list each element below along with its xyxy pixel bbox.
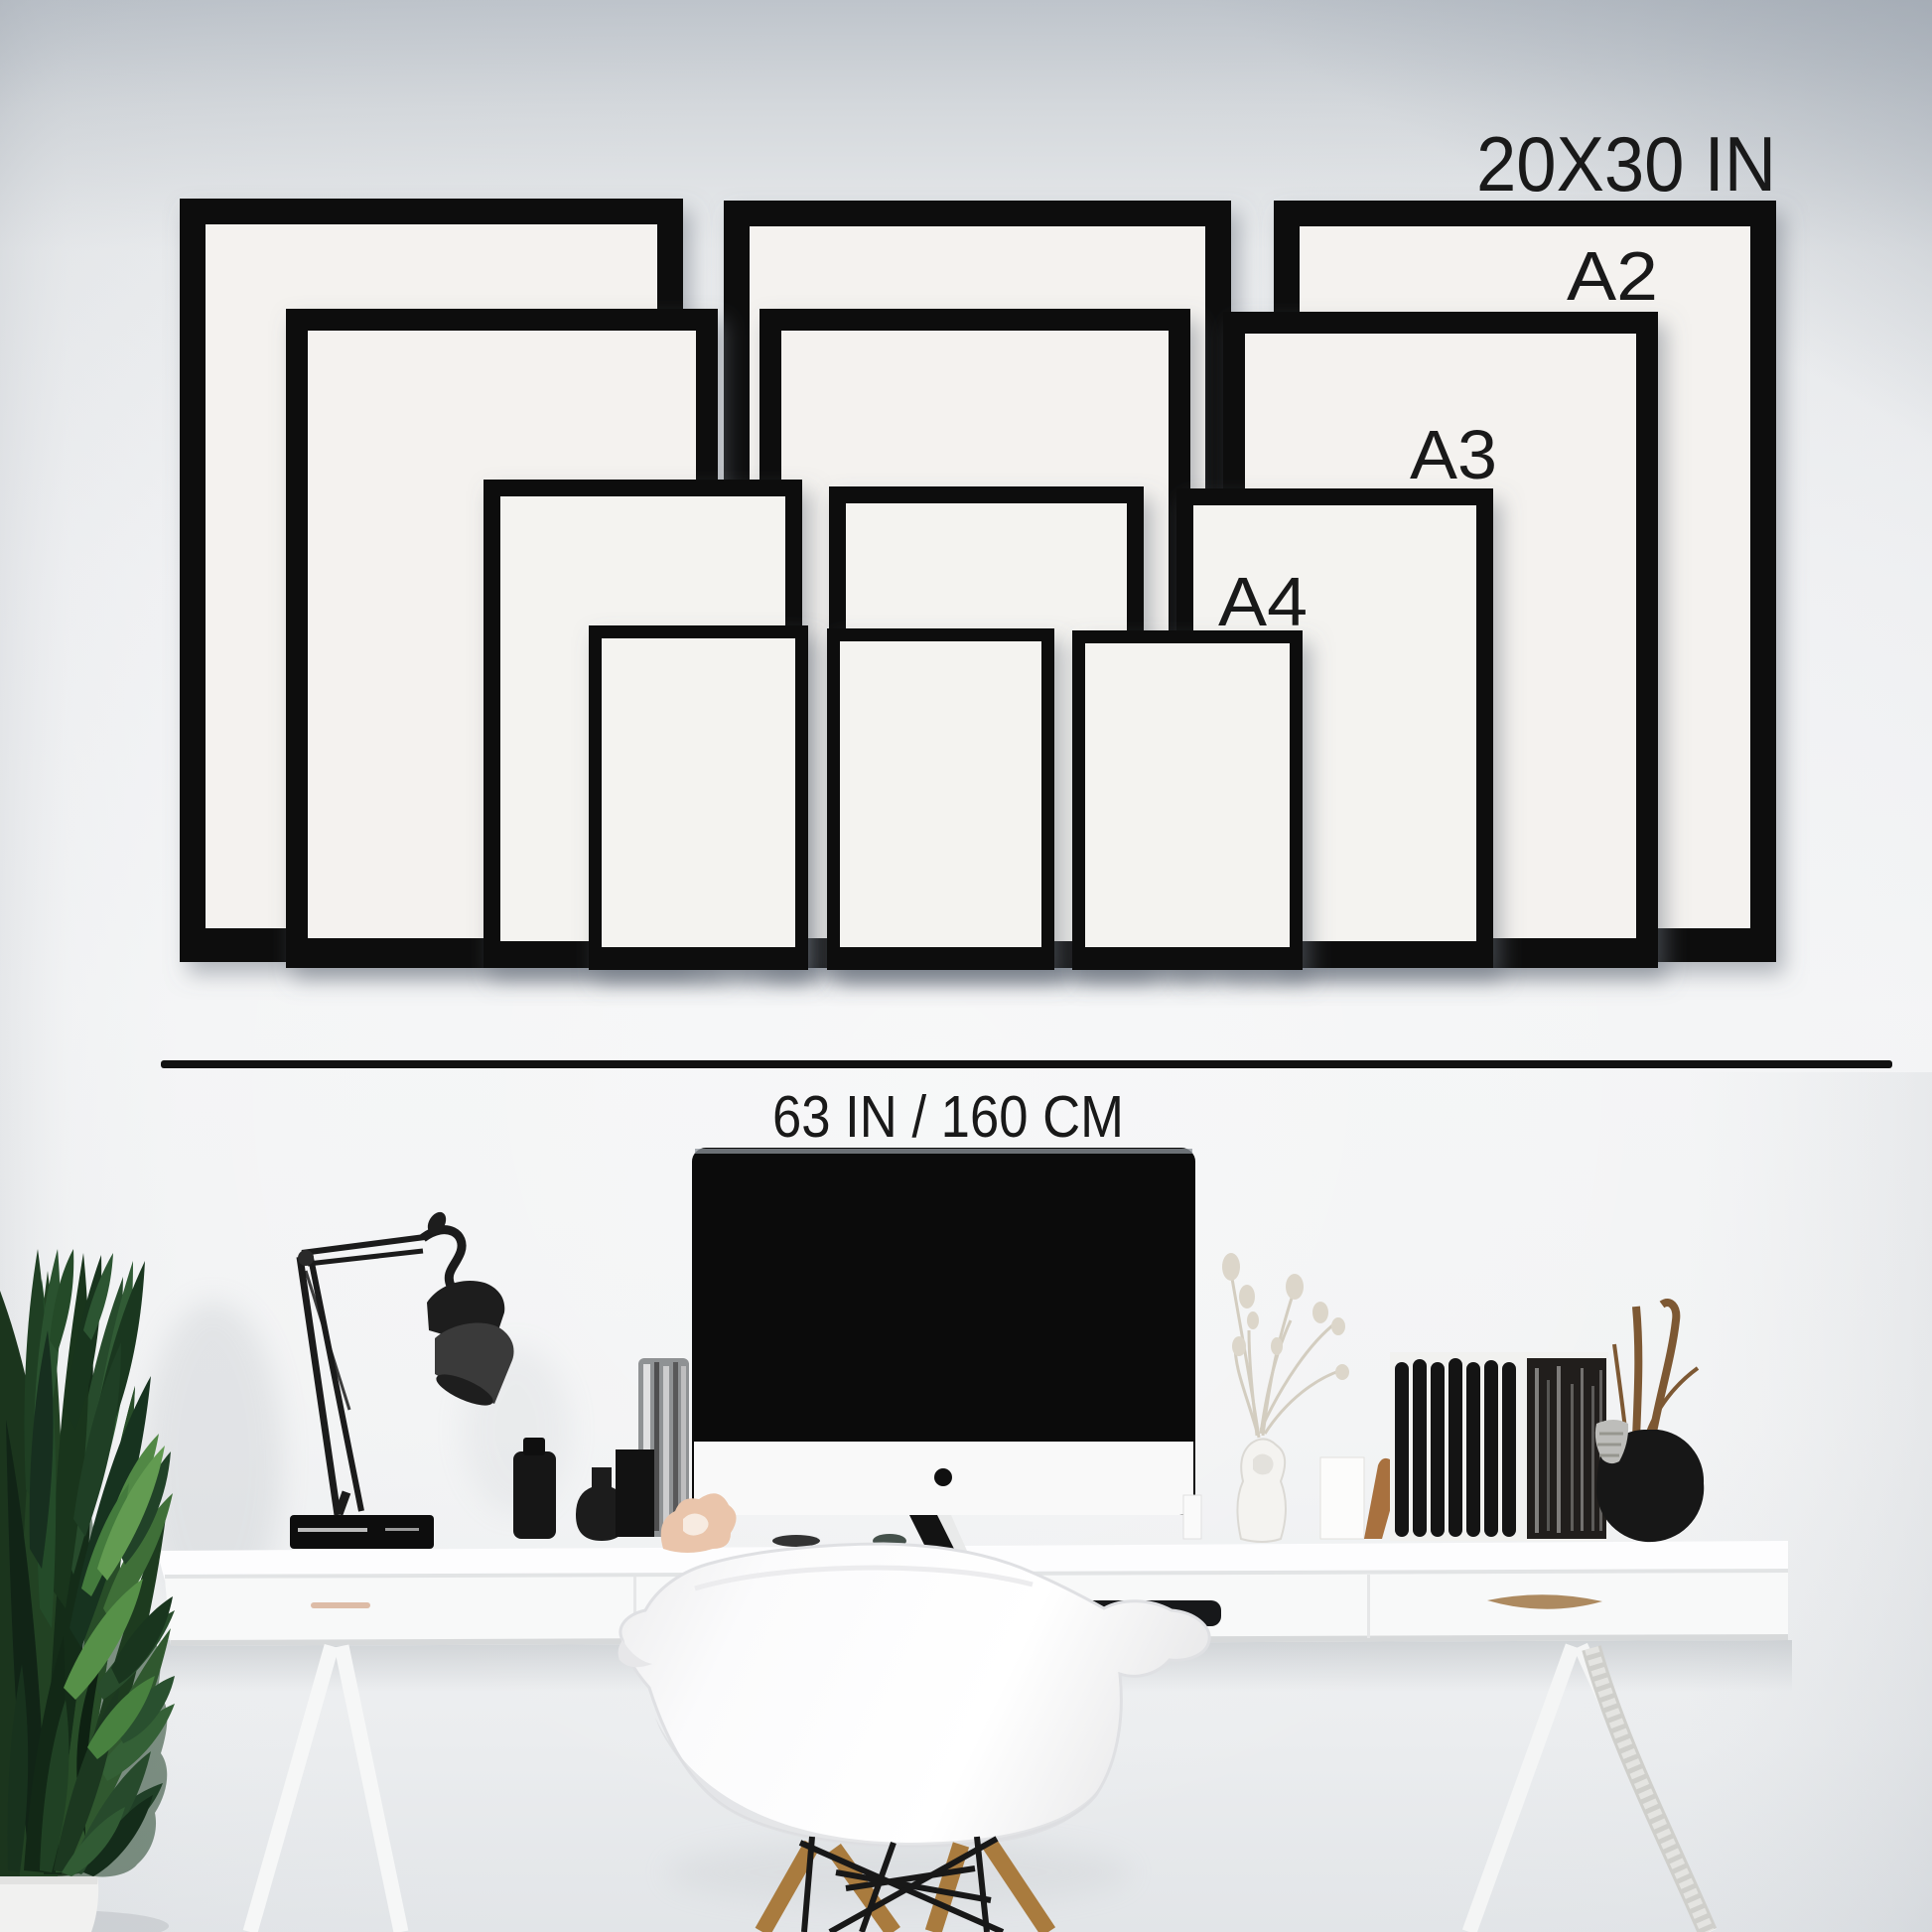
- svg-text:A4: A4: [1218, 563, 1308, 640]
- svg-text:A2: A2: [1567, 237, 1658, 315]
- svg-text:63 IN / 160 CM: 63 IN / 160 CM: [772, 1084, 1124, 1150]
- svg-text:A3: A3: [1410, 416, 1497, 493]
- svg-text:20X30 IN: 20X30 IN: [1476, 120, 1776, 207]
